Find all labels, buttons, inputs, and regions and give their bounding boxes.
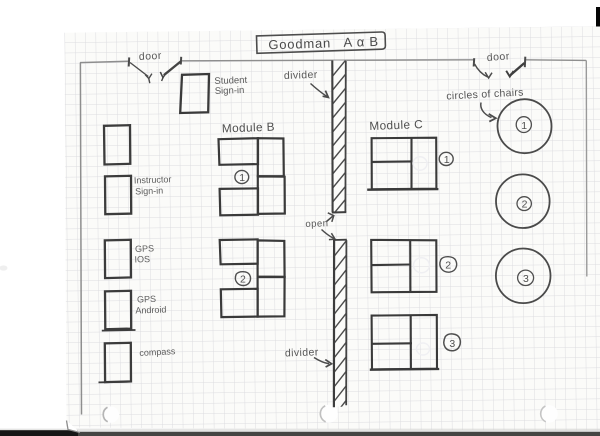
svg-text:compass: compass: [139, 346, 176, 358]
svg-text:3: 3: [523, 273, 529, 285]
svg-text:open: open: [305, 218, 328, 230]
svg-text:1: 1: [239, 172, 245, 184]
svg-text:Sign-in: Sign-in: [215, 85, 245, 97]
svg-text:divider: divider: [285, 346, 319, 359]
svg-text:1: 1: [444, 154, 450, 166]
svg-text:3: 3: [449, 338, 455, 350]
svg-text:2: 2: [445, 260, 451, 272]
svg-text:Android: Android: [135, 304, 166, 315]
svg-text:Instructor: Instructor: [134, 174, 172, 185]
svg-text:GPS: GPS: [137, 294, 156, 305]
svg-text:GPS: GPS: [135, 243, 154, 254]
svg-text:door: door: [139, 50, 163, 63]
svg-text:Module C: Module C: [369, 117, 423, 133]
svg-text:2: 2: [240, 274, 246, 286]
svg-text:2: 2: [522, 199, 528, 211]
svg-text:door: door: [486, 50, 510, 64]
svg-text:Module B: Module B: [222, 120, 276, 136]
svg-text:Sign-in: Sign-in: [135, 185, 163, 196]
svg-text:IOS: IOS: [134, 254, 150, 265]
svg-text:divider: divider: [284, 69, 318, 82]
svg-text:1: 1: [521, 120, 527, 132]
